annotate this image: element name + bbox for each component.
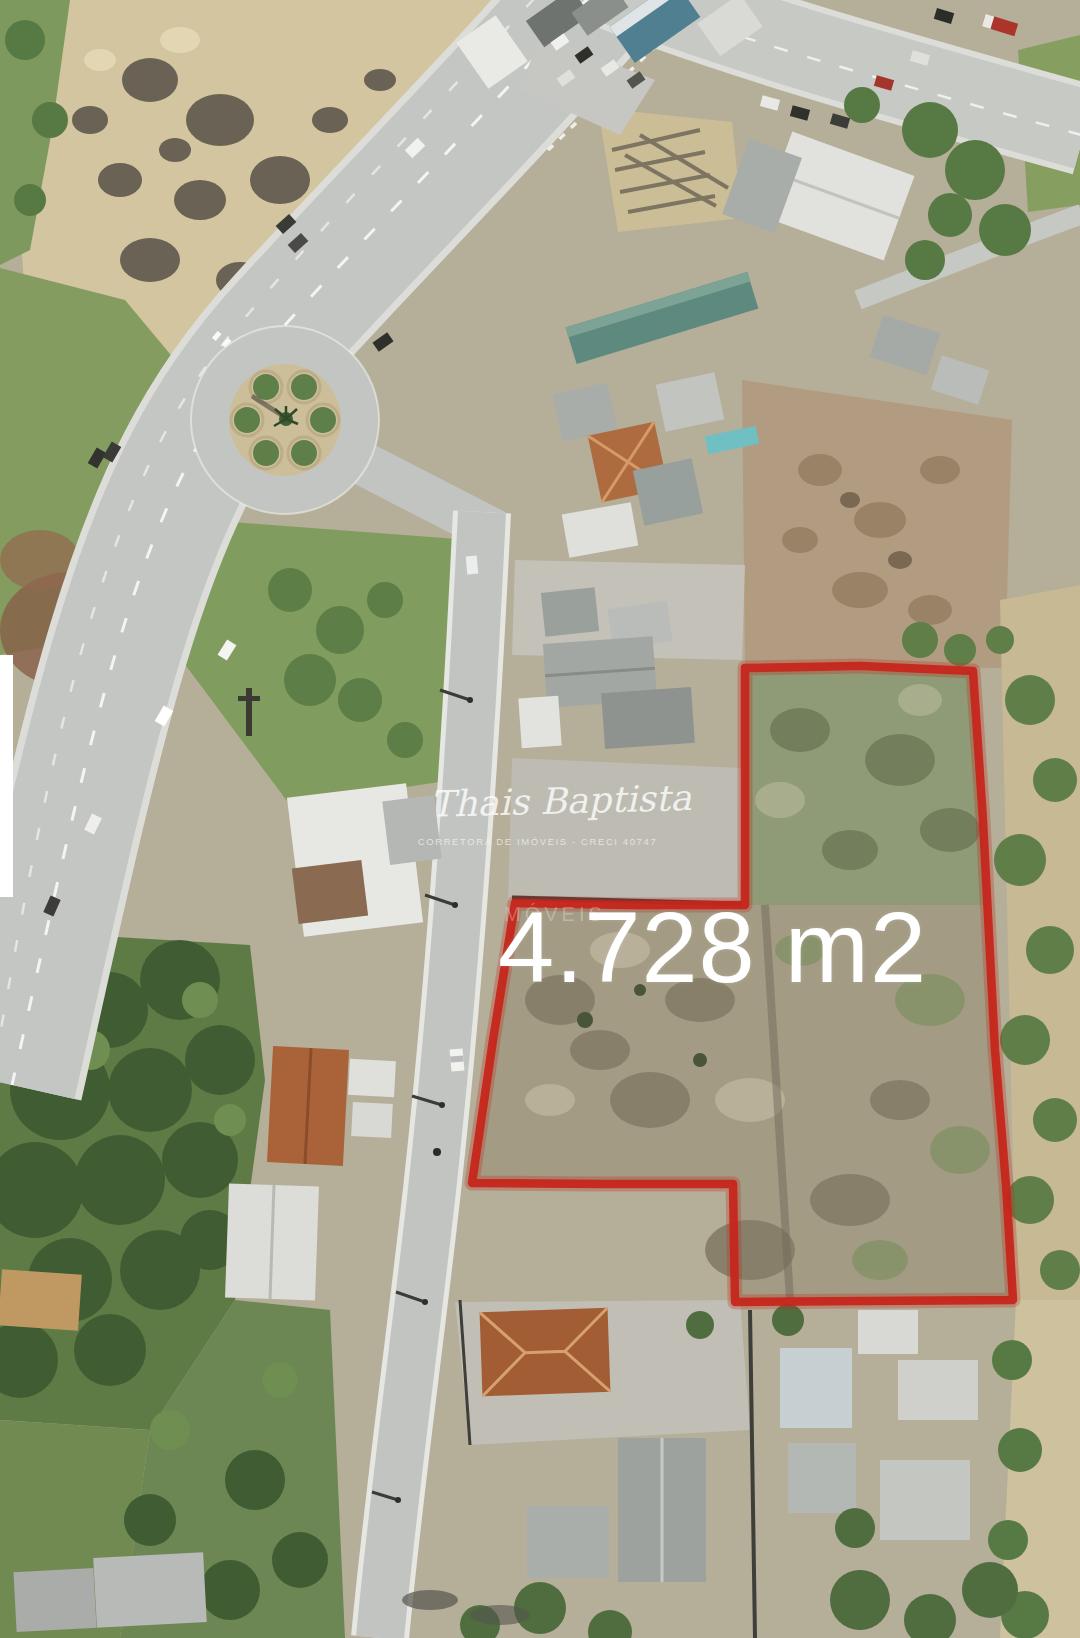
watermark-name: Thais Baptista: [430, 779, 646, 824]
watermark-subtitle: CORRETORA DE IMÓVEIS - CRECI 40747: [395, 836, 680, 847]
area-label: 4.728 m2: [498, 890, 927, 1005]
left-white-bar: [0, 655, 13, 897]
aerial-photo: Thais Baptista CORRETORA DE IMÓVEIS - CR…: [0, 0, 1080, 1638]
roundabout: [191, 326, 379, 514]
